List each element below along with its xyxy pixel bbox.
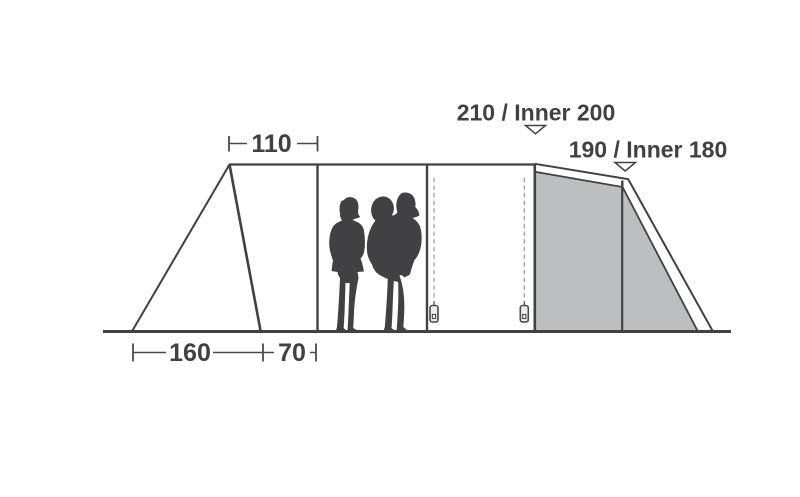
people-silhouette — [329, 193, 421, 333]
height-callout-center: 210 / Inner 200 — [457, 100, 616, 134]
front-width-value: 160 — [169, 339, 211, 367]
front-guy-line — [133, 165, 230, 331]
diagram-canvas: 110 160 70 210 / Inner 200 190 / Inner 1… — [0, 0, 800, 497]
rear-height-label: 190 / Inner 180 — [569, 137, 728, 163]
top-width-value: 110 — [251, 130, 291, 158]
adult-silhouette — [329, 197, 365, 332]
center-height-label: 210 / Inner 200 — [457, 100, 616, 126]
zipper-pull-icon — [520, 302, 528, 323]
adult-with-child-silhouette — [367, 193, 422, 333]
dimension-bottom-widths: 160 70 — [133, 339, 317, 367]
rear-sleeping-panel-fill — [536, 173, 623, 331]
triangle-down-icon — [615, 163, 636, 172]
triangle-down-icon — [526, 126, 546, 134]
front-pole — [230, 165, 261, 331]
height-callout-rear: 190 / Inner 180 — [569, 137, 728, 172]
zipper-pull-icon — [430, 302, 438, 323]
porch-width-value: 70 — [278, 339, 306, 367]
dimension-top-width: 110 — [229, 130, 318, 158]
tent-dimension-diagram: 110 160 70 210 / Inner 200 190 / Inner 1… — [0, 0, 800, 497]
